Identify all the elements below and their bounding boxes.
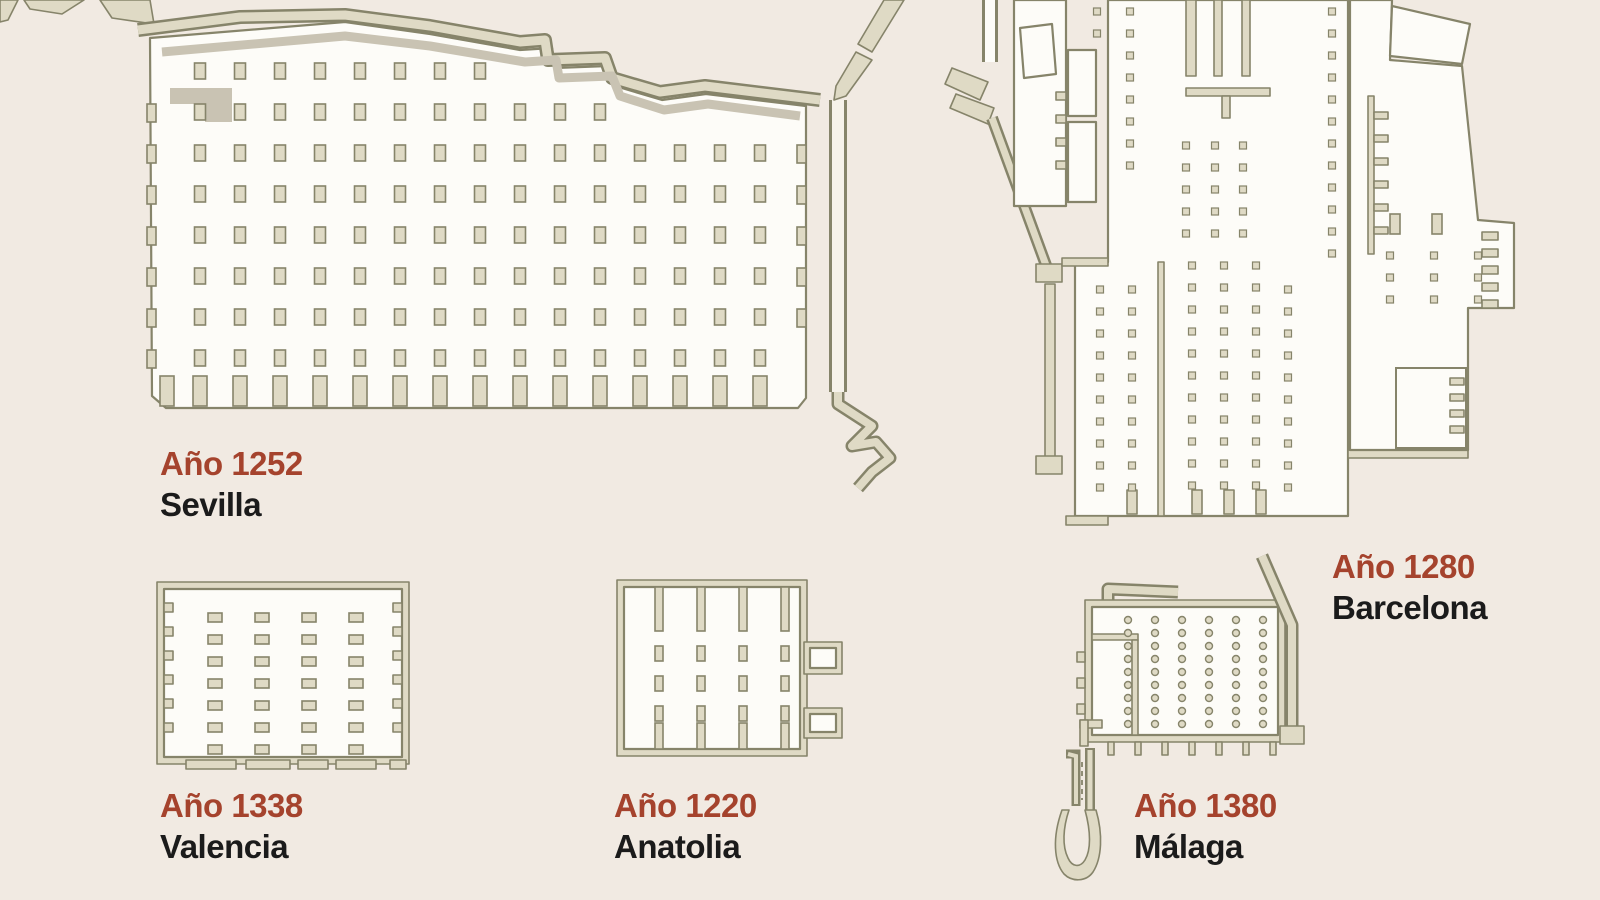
label-sevilla: Año 1252 Sevilla — [160, 444, 303, 526]
city-text: Valencia — [160, 826, 303, 868]
label-valencia: Año 1338 Valencia — [160, 786, 303, 868]
anatolia-plan — [617, 580, 842, 756]
edge-fragments — [0, 0, 154, 24]
year-text: Año 1220 — [614, 786, 757, 826]
year-text: Año 1252 — [160, 444, 303, 484]
valencia-plan — [157, 582, 409, 769]
sevilla-plan — [138, 0, 904, 488]
city-text: Sevilla — [160, 484, 303, 526]
label-anatolia: Año 1220 Anatolia — [614, 786, 757, 868]
barcelona-plan — [945, 0, 1514, 525]
label-barcelona: Año 1280 Barcelona — [1332, 547, 1487, 629]
year-text: Año 1280 — [1332, 547, 1487, 587]
city-text: Anatolia — [614, 826, 757, 868]
city-text: Barcelona — [1332, 587, 1487, 629]
year-text: Año 1338 — [160, 786, 303, 826]
city-text: Málaga — [1134, 826, 1277, 868]
year-text: Año 1380 — [1134, 786, 1277, 826]
infographic-canvas: Año 1252 Sevilla Año 1280 Barcelona Año … — [0, 0, 1600, 900]
label-malaga: Año 1380 Málaga — [1134, 786, 1277, 868]
